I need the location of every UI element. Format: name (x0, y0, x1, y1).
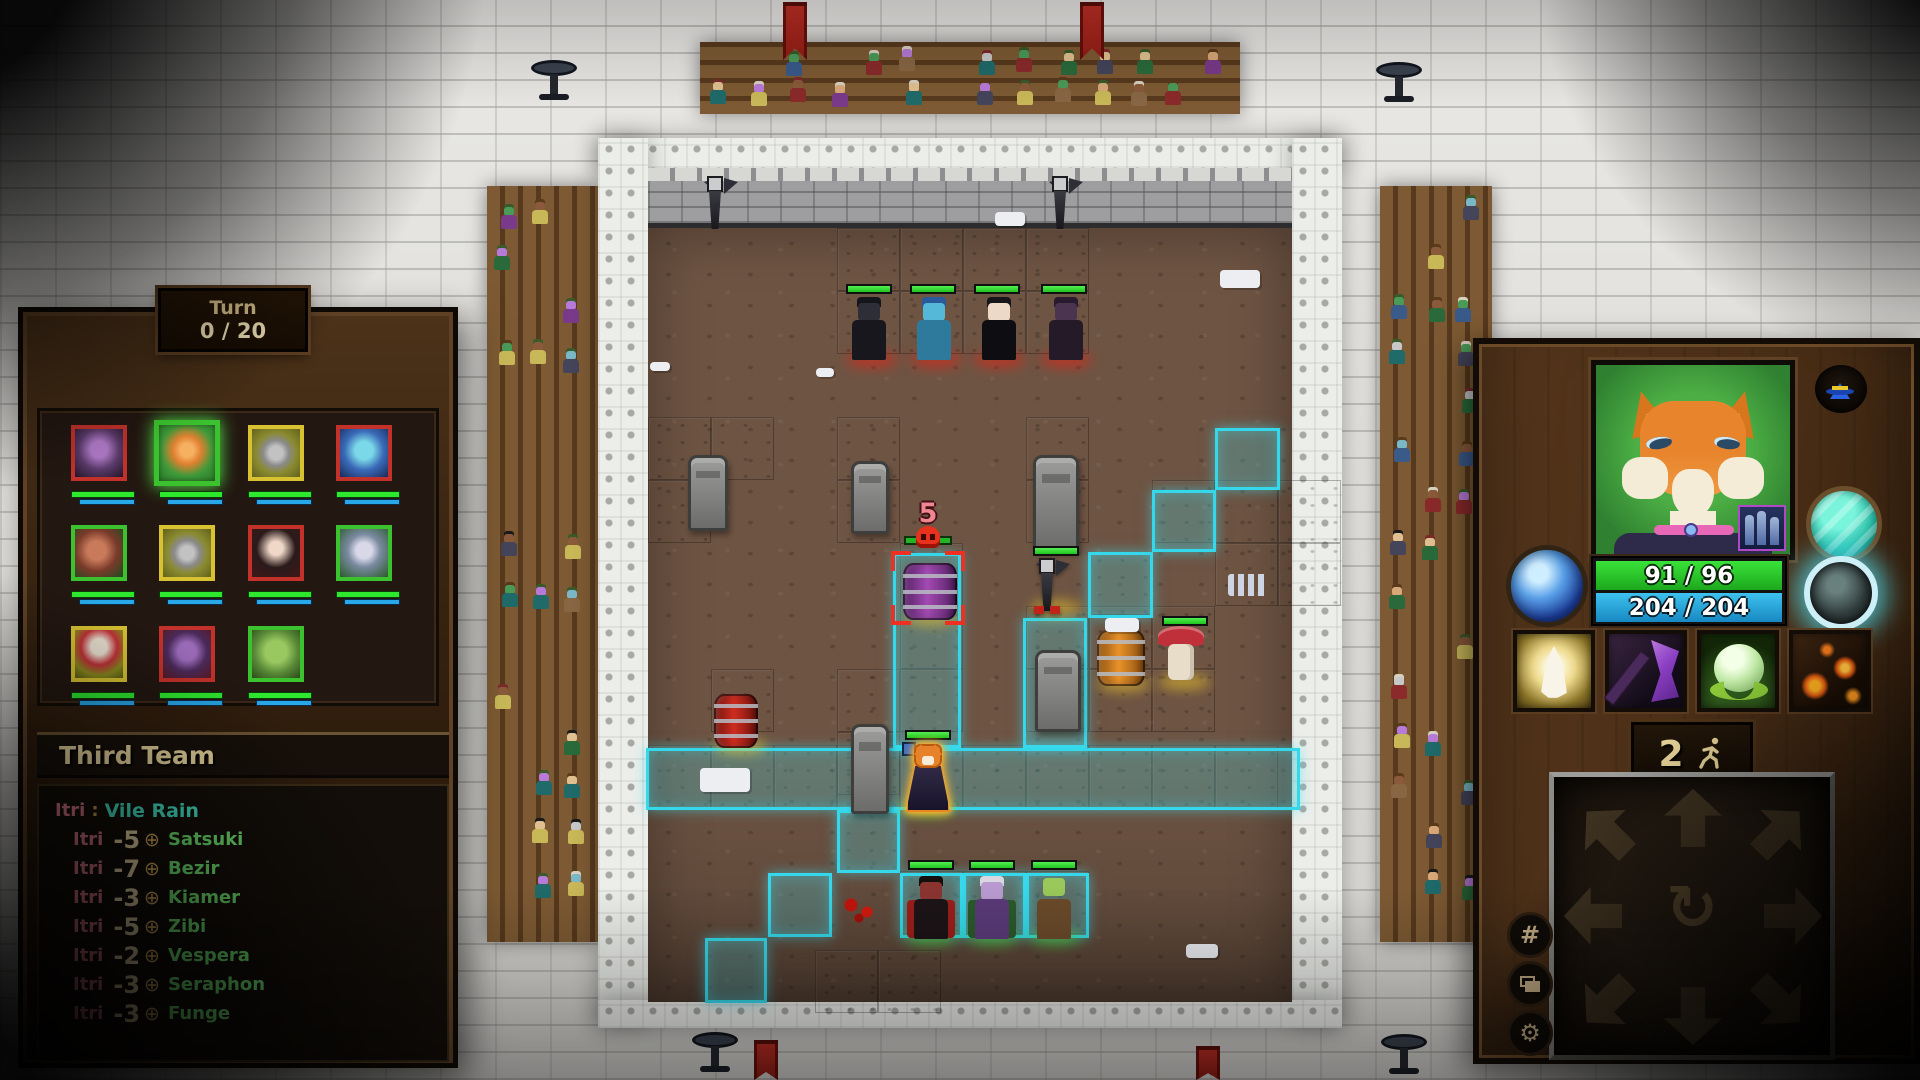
spectator (501, 582, 519, 608)
game-screen: 5 Turn 0 / 20 Third Team Itri:Vile RainI… (0, 0, 1920, 1080)
enemy-counter: 5 (904, 498, 952, 556)
enemy-dark-woman[interactable] (973, 297, 1025, 363)
gargoyle-statue (700, 176, 730, 232)
dpad-arrow-180[interactable] (1664, 987, 1722, 1045)
stool (531, 56, 577, 104)
spectator (531, 818, 549, 844)
arena-border-top (598, 138, 1342, 168)
settings-button[interactable]: ⚙ (1507, 1010, 1553, 1056)
dpad-arrow-90[interactable] (1764, 887, 1822, 945)
portrait-purple-demoness[interactable] (159, 626, 215, 682)
spectator (1390, 773, 1408, 799)
spectator (1015, 47, 1033, 73)
log-entry: Itri-5⊕Zibi (55, 912, 447, 941)
spectator (562, 298, 580, 324)
crosshair-icon: ⊕ (144, 1003, 160, 1025)
spectator (1136, 49, 1154, 75)
unit-hp-bar (974, 284, 1020, 294)
moves-left-value: 2 (1658, 734, 1683, 775)
stone-tile (900, 228, 963, 291)
spirit-orb-button[interactable] (1506, 545, 1588, 627)
spectator (1462, 195, 1480, 221)
portrait-hp-bar (336, 491, 400, 498)
gear-icon: ⚙ (1519, 1019, 1541, 1047)
spectator (494, 684, 512, 710)
spectator (1455, 489, 1473, 515)
enemy-mushroom[interactable] (1158, 626, 1204, 682)
portrait-hp-bar (159, 591, 223, 598)
team-name: Third Team (59, 741, 215, 770)
portrait-hp-bar (336, 591, 400, 598)
spectator (1424, 869, 1442, 895)
portrait-dark-haired-woman[interactable] (248, 525, 304, 581)
top-bleachers (700, 42, 1240, 114)
spectator (1393, 723, 1411, 749)
portrait-hp-bar (159, 692, 223, 699)
movement-tile[interactable] (1215, 428, 1280, 490)
gargoyle-statue (1045, 176, 1075, 232)
portrait-pale-elf[interactable] (336, 525, 392, 581)
bones-decor (1220, 270, 1260, 288)
spectator (1421, 535, 1439, 561)
grid-toggle-button[interactable]: # (1507, 912, 1553, 958)
bones-decor (1186, 944, 1218, 958)
log-entry: Itri-3⊕Seraphon (55, 970, 447, 999)
spectator (709, 79, 727, 105)
bones-decor (995, 212, 1025, 226)
dpad-arrow-270[interactable] (1564, 887, 1622, 945)
spectator (831, 82, 849, 108)
spectator (1390, 294, 1408, 320)
log-entry: Itri-7⊕Bezir (55, 854, 447, 883)
spectator (567, 819, 585, 845)
portrait-hp-bar (248, 591, 312, 598)
movement-tile[interactable] (1088, 552, 1153, 618)
enemy-cat-fiend[interactable] (843, 297, 895, 363)
dpad-arrow-315[interactable] (1566, 791, 1648, 873)
portrait-gray-bat-2[interactable] (159, 525, 215, 581)
log-entry: Itri-3⊕Kiamer (55, 883, 447, 912)
movement-tile[interactable] (768, 873, 832, 937)
stool (1381, 1030, 1427, 1078)
spectator (789, 77, 807, 103)
spectator (1393, 437, 1411, 463)
turn-value: 0 / 20 (161, 319, 305, 343)
log-ability: Vile Rain (105, 800, 199, 822)
portrait-hp-bar (71, 692, 135, 699)
team-panel: Turn 0 / 20 Third Team Itri:Vile RainItr… (18, 307, 458, 1068)
ability-healing-prayer[interactable] (1513, 630, 1595, 712)
arena-north-wall (648, 168, 1292, 228)
tombstone (688, 455, 728, 531)
spectator (493, 245, 511, 271)
movement-tile[interactable] (837, 810, 900, 873)
dpad-arrow-225[interactable] (1566, 961, 1648, 1043)
log-entry: Itri-3⊕Funge (55, 999, 447, 1028)
portrait-purple-feline[interactable] (71, 425, 127, 481)
stone-tile (837, 228, 900, 291)
enemy-gargoyle[interactable] (1032, 558, 1062, 614)
spectator (1427, 244, 1445, 270)
ability-lava-burst[interactable] (1789, 630, 1871, 712)
bones-decor (816, 368, 834, 377)
unit-hp-bar (846, 284, 892, 294)
dpad-arrow-45[interactable] (1738, 791, 1820, 873)
spectator (532, 584, 550, 610)
tombstone (1035, 650, 1081, 732)
hero-stat-bars: 91 / 96 204 / 204 (1591, 556, 1787, 626)
spectator (563, 587, 581, 613)
portrait-gray-bat[interactable] (248, 425, 304, 481)
bones-decor (1228, 574, 1268, 596)
target-brackets (891, 551, 965, 625)
ability-shadow-axe[interactable] (1605, 630, 1687, 712)
arena-floor: 5 (648, 228, 1292, 1002)
teal-sphere-button[interactable] (1806, 486, 1882, 562)
orange-barrel[interactable] (1097, 630, 1145, 686)
portrait-mana-bar (256, 700, 312, 706)
movement-tile[interactable] (705, 938, 767, 1003)
crosshair-icon: ⊕ (144, 858, 160, 880)
unit-hp-bar (910, 284, 956, 294)
layers-icon (1520, 976, 1540, 992)
ally-orc[interactable] (1028, 876, 1080, 942)
spectator (1390, 674, 1408, 700)
stool (1376, 58, 1422, 106)
log-caster: Itri (55, 800, 85, 821)
unit-hp-bar (1162, 616, 1208, 626)
spectator (865, 50, 883, 76)
spectator (1454, 297, 1472, 323)
portrait-fox-hero[interactable] (154, 420, 220, 486)
spectator (534, 873, 552, 899)
movement-dpad: ↻ (1549, 772, 1835, 1060)
hero-hp-bar: 91 / 96 (1596, 561, 1782, 590)
unit-hp-bar (908, 860, 954, 870)
enemy-counter-value: 5 (904, 498, 952, 529)
portrait-mana-bar (79, 599, 135, 605)
stone-tile (837, 669, 900, 732)
spectator (1094, 80, 1112, 106)
log-header: Itri:Vile Rain (55, 796, 447, 825)
stone-tile (815, 950, 878, 1013)
spectator (1054, 77, 1072, 103)
blood-splatter (843, 896, 881, 924)
crosshair-icon: ⊕ (144, 829, 160, 851)
bones-decor (650, 362, 670, 371)
red-barrel[interactable] (714, 694, 758, 748)
spectator (562, 348, 580, 374)
unit-hp-bar (1041, 284, 1087, 294)
turn-counter: Turn 0 / 20 (158, 288, 308, 352)
portrait-mana-bar (256, 599, 312, 605)
rotate-button[interactable]: ↻ (1666, 877, 1718, 939)
spectator (1388, 339, 1406, 365)
log-entry: Itri-5⊕Satsuki (55, 825, 447, 854)
hero-mana-bar: 204 / 204 (1596, 593, 1782, 622)
spectator (535, 770, 553, 796)
ally-mage[interactable] (966, 876, 1018, 942)
turn-label: Turn (161, 297, 305, 319)
ally-demoness[interactable] (905, 876, 957, 942)
portrait-hp-bar (248, 692, 312, 699)
left-bleachers (487, 186, 599, 942)
active-orb-button[interactable] (1804, 556, 1878, 630)
stone-tile (1278, 480, 1341, 543)
runner-icon (1696, 736, 1726, 772)
spectator (531, 199, 549, 225)
spectator (1424, 731, 1442, 757)
stone-tile (963, 228, 1026, 291)
crosshair-icon: ⊕ (144, 974, 160, 996)
unit-hp-bar (1031, 860, 1077, 870)
hero-hp-value: 91 / 96 (1645, 563, 1733, 589)
wizard-hat-button[interactable] (1815, 365, 1867, 413)
log-entry: Itri-2⊕Vespera (55, 941, 447, 970)
combat-log[interactable]: Itri:Vile RainItri-5⊕SatsukiItri-7⊕Bezir… (37, 784, 449, 1062)
portrait-mana-bar (167, 599, 223, 605)
unit-hp-bar (969, 860, 1015, 870)
stone-tile (1278, 543, 1341, 606)
spectator (1425, 823, 1443, 849)
spectator (1164, 80, 1182, 106)
stone-tile (1026, 228, 1089, 291)
portrait-hp-bar (71, 591, 135, 598)
spectator (564, 534, 582, 560)
portrait-blue-naga[interactable] (336, 425, 392, 481)
arena-border-left (598, 138, 648, 1024)
wizard-hat-icon (1826, 375, 1854, 397)
portrait-hp-bar (159, 491, 223, 498)
portrait-mana-bar (344, 499, 400, 505)
portrait-mushroom-man[interactable] (71, 626, 127, 682)
spectator (1016, 80, 1034, 106)
crosshair-icon: ⊕ (144, 916, 160, 938)
spectator (1456, 634, 1474, 660)
portrait-mana-bar (79, 499, 135, 505)
tombstone (851, 461, 889, 534)
portrait-mana-bar (167, 700, 223, 706)
spectator (1388, 584, 1406, 610)
spectator (498, 340, 516, 366)
summon-preview (1738, 505, 1786, 551)
dpad-arrow-135[interactable] (1738, 961, 1820, 1043)
portrait-mana-bar (344, 599, 400, 605)
spectator (500, 204, 518, 230)
unit-hp-bar (1033, 546, 1079, 556)
portrait-green-orc[interactable] (248, 626, 304, 682)
spectator (1428, 297, 1446, 323)
spectator (750, 81, 768, 107)
dpad-arrow-0[interactable] (1664, 789, 1722, 847)
hero-portrait[interactable] (1591, 360, 1795, 560)
movement-tile[interactable] (1152, 490, 1216, 552)
skull-icon (916, 526, 940, 548)
spectator (905, 80, 923, 106)
spectator (563, 773, 581, 799)
crosshair-icon: ⊕ (144, 945, 160, 967)
arena-border-bottom (598, 1000, 1342, 1028)
portrait-mana-bar (79, 700, 135, 706)
portrait-grid (37, 408, 439, 706)
hero-mana-value: 204 / 204 (1629, 595, 1749, 621)
spectator (1130, 81, 1148, 107)
portrait-mana-bar (167, 499, 223, 505)
portrait-horned-demoness[interactable] (71, 525, 127, 581)
team-name-bar: Third Team (37, 732, 449, 778)
tombstone (1033, 455, 1079, 551)
stool (692, 1028, 738, 1076)
spectator (1060, 50, 1078, 76)
spectator (1457, 341, 1475, 367)
portrait-hp-bar (71, 491, 135, 498)
spectator (529, 339, 547, 365)
portrait-mana-bar (256, 499, 312, 505)
spectator (898, 46, 916, 72)
spectator (1424, 487, 1442, 513)
grid-icon: # (1520, 921, 1540, 949)
enemy-demon[interactable] (1040, 297, 1092, 363)
spectator (500, 531, 518, 557)
hero-unit[interactable] (900, 742, 956, 814)
enemy-naga[interactable] (908, 297, 960, 363)
spectator (978, 50, 996, 76)
feathers-decor (1105, 618, 1139, 632)
crosshair-icon: ⊕ (144, 887, 160, 909)
ability-life-orb[interactable] (1697, 630, 1779, 712)
layers-button[interactable] (1507, 961, 1553, 1007)
spectator (1389, 530, 1407, 556)
spectator (563, 730, 581, 756)
bones-decor (700, 768, 750, 792)
stone-tile (878, 950, 941, 1013)
spectator (567, 871, 585, 897)
portrait-hp-bar (248, 491, 312, 498)
spectator (976, 80, 994, 106)
spectator (1204, 49, 1222, 75)
tombstone (851, 724, 889, 814)
